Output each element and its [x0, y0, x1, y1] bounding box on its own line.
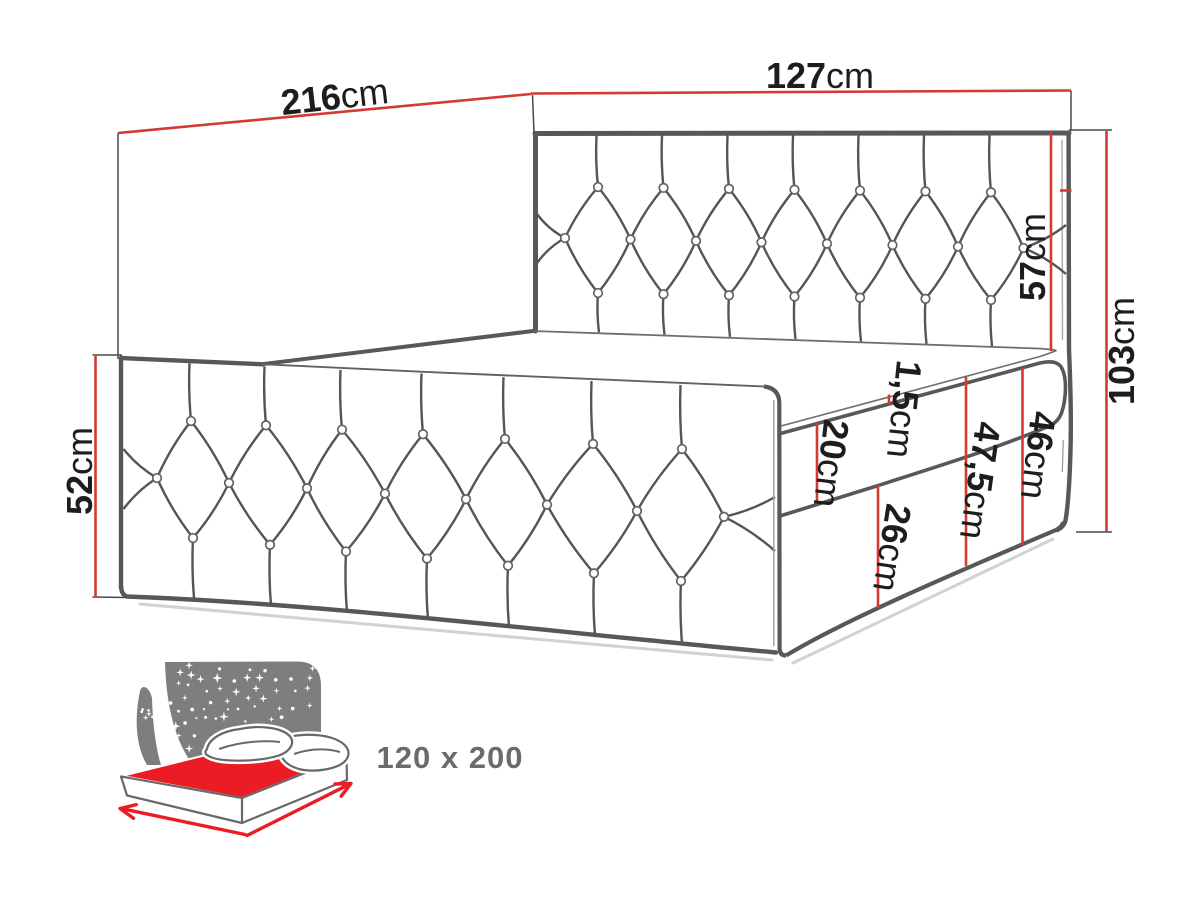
- svg-text:52cm: 52cm: [59, 427, 100, 515]
- svg-text:120 x 200: 120 x 200: [377, 740, 524, 775]
- svg-text:127cm: 127cm: [766, 55, 874, 96]
- svg-text:103cm: 103cm: [1101, 297, 1142, 405]
- svg-text:57cm: 57cm: [1012, 213, 1053, 301]
